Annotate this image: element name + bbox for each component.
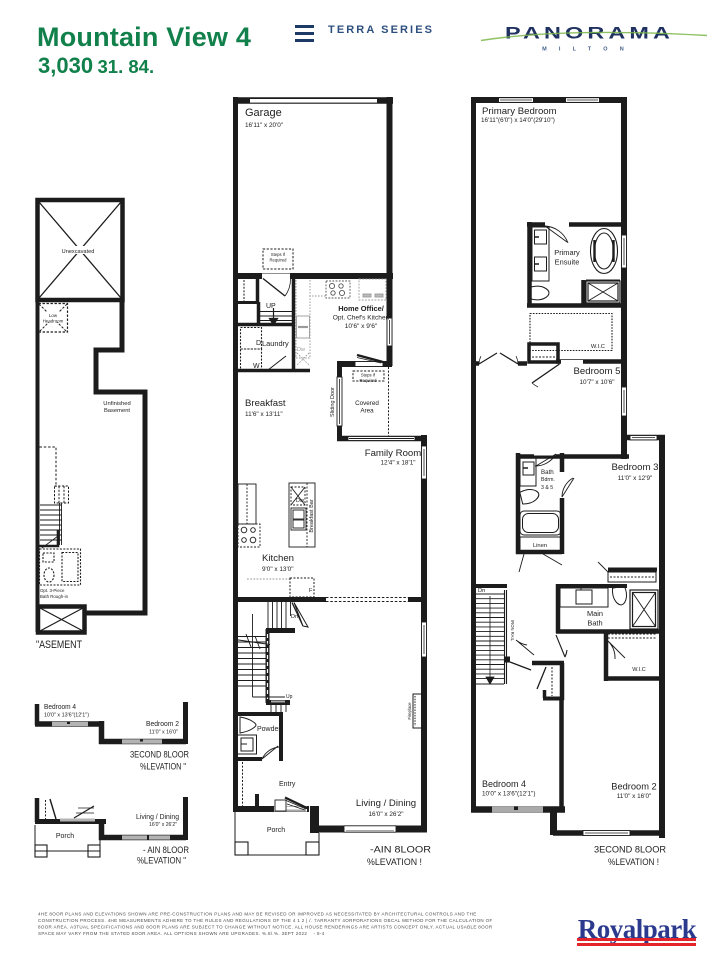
svg-text:Up: Up (286, 694, 293, 700)
svg-text:Kitchen: Kitchen (262, 553, 294, 564)
svg-text:"ASEMENT: "ASEMENT (36, 639, 82, 651)
svg-text:Main: Main (587, 609, 603, 618)
svg-text:Fireplace: Fireplace (407, 702, 412, 720)
svg-text:Primary: Primary (554, 248, 580, 257)
svg-text:Entry: Entry (279, 781, 296, 788)
svg-text:%LEVATION ": %LEVATION " (140, 761, 186, 772)
svg-text:Breakfast: Breakfast (245, 398, 286, 409)
svg-text:10'6" x 9'6": 10'6" x 9'6" (345, 323, 378, 330)
svg-text:Dn: Dn (478, 588, 485, 594)
svg-text:12'4" x 18'1": 12'4" x 18'1" (380, 460, 415, 467)
svg-text:Living / Dining: Living / Dining (356, 798, 416, 809)
svg-text:UP: UP (266, 303, 276, 310)
svg-text:11'6" x 13'11": 11'6" x 13'11" (245, 411, 283, 418)
svg-text:-AIN 8LOOR: -AIN 8LOOR (370, 844, 431, 855)
svg-text:16'0" x 26'2": 16'0" x 26'2" (149, 822, 177, 828)
svg-text:Dw: Dw (297, 347, 305, 353)
svg-text:Bedroom 2: Bedroom 2 (611, 782, 656, 792)
svg-text:16'11"(6'0") x 14'0"(29'10"): 16'11"(6'0") x 14'0"(29'10") (481, 117, 555, 124)
svg-text:Bedroom 4: Bedroom 4 (482, 779, 526, 789)
svg-text:F: F (309, 588, 313, 594)
svg-text:Home Office/: Home Office/ (338, 304, 384, 313)
svg-text:Opt. 3-Piece: Opt. 3-Piece (40, 588, 65, 593)
svg-text:%LEVATION !: %LEVATION ! (608, 856, 659, 867)
svg-text:Living / Dining: Living / Dining (136, 812, 179, 821)
svg-text:3ECOND 8LOOR: 3ECOND 8LOOR (130, 749, 189, 760)
svg-text:Family Room: Family Room (365, 448, 422, 459)
svg-text:Bdrm.: Bdrm. (541, 477, 555, 483)
svg-text:Required: Required (270, 258, 288, 263)
svg-text:11'0" x 12'9": 11'0" x 12'9" (618, 475, 653, 482)
svg-text:Sliding Door: Sliding Door (330, 387, 336, 417)
svg-text:10'7" x 10'6": 10'7" x 10'6" (579, 379, 614, 386)
svg-text:Ensuite: Ensuite (555, 258, 580, 267)
svg-text:Dn: Dn (291, 614, 298, 620)
svg-text:10'0" x 13'6"(12'1"): 10'0" x 13'6"(12'1") (44, 713, 89, 719)
svg-text:W.I.C: W.I.C (591, 344, 605, 350)
svg-text:Basement: Basement (104, 408, 130, 414)
svg-text:Required: Required (360, 378, 378, 383)
svg-text:Primary Bedroom: Primary Bedroom (482, 106, 557, 117)
svg-text:Steps If: Steps If (271, 252, 286, 257)
svg-text:Bath: Bath (587, 619, 602, 628)
svg-text:16'0" x 26'2": 16'0" x 26'2" (368, 811, 403, 818)
svg-text:Unexcavated: Unexcavated (62, 249, 95, 255)
svg-text:IRON RAIL: IRON RAIL (510, 620, 515, 642)
svg-text:Low: Low (49, 313, 58, 318)
svg-text:D: D (256, 340, 261, 347)
svg-text:10'0" x 13'6"(12'1"): 10'0" x 13'6"(12'1") (482, 791, 535, 798)
svg-text:Steps If: Steps If (361, 373, 376, 378)
svg-text:Porch: Porch (56, 833, 74, 840)
svg-text:Opt. Chef's Kitchen: Opt. Chef's Kitchen (333, 315, 390, 322)
svg-text:Laundry: Laundry (262, 339, 289, 348)
svg-text:Linen: Linen (533, 543, 547, 549)
svg-text:Garage: Garage (245, 107, 282, 119)
svg-text:%LEVATION !: %LEVATION ! (367, 856, 422, 867)
svg-text:Dw: Dw (296, 498, 304, 504)
svg-text:%LEVATION ": %LEVATION " (137, 855, 186, 866)
svg-text:Unfinished: Unfinished (103, 401, 130, 407)
svg-text:11'0" x 16'0": 11'0" x 16'0" (617, 793, 652, 800)
svg-text:Bedroom 4: Bedroom 4 (44, 702, 76, 711)
svg-text:Porch: Porch (267, 827, 285, 834)
svg-text:16'11" x 20'0": 16'11" x 20'0" (245, 122, 283, 129)
svg-text:- AIN 8LOOR: - AIN 8LOOR (143, 844, 189, 855)
svg-text:W.I.C: W.I.C (632, 667, 645, 673)
svg-text:3ECOND 8LOOR: 3ECOND 8LOOR (594, 844, 666, 855)
svg-text:Bath: Bath (541, 469, 554, 476)
svg-text:Bedroom 3: Bedroom 3 (612, 462, 659, 473)
svg-text:Breakfast Bar: Breakfast Bar (309, 499, 315, 532)
svg-text:Powder: Powder (257, 726, 281, 733)
svg-text:11'0" x 16'0": 11'0" x 16'0" (149, 730, 178, 736)
svg-text:Bath Rough-in: Bath Rough-in (40, 594, 69, 599)
svg-text:3 & 5: 3 & 5 (541, 485, 553, 491)
svg-text:Headroom: Headroom (43, 319, 64, 324)
svg-text:9'0" x 13'0": 9'0" x 13'0" (262, 566, 294, 573)
svg-text:Covered: Covered (355, 400, 379, 407)
svg-text:Area: Area (360, 408, 374, 415)
svg-text:Bedroom 2: Bedroom 2 (146, 719, 179, 728)
svg-text:Bedroom 5: Bedroom 5 (574, 366, 621, 377)
